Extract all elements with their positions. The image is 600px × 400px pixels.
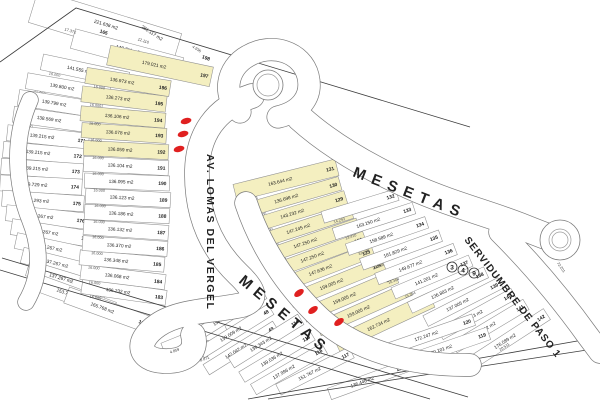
street-label-av-lomas-del-vergel: AV. LOMAS DEL VERGEL <box>204 154 216 310</box>
cadastral-map: 221.638 m2165148.711 m2166141.555 m21671… <box>0 0 600 400</box>
parcel-lot-number: 189 <box>159 197 168 203</box>
parcel-lot-number: 172 <box>73 153 82 160</box>
parcel-lot-number: 188 <box>158 213 167 219</box>
parcel-lot-number: 186 <box>156 246 165 253</box>
parcel-lot-number: 194 <box>154 118 163 125</box>
parcel-dimension: 16.000 <box>92 235 104 240</box>
parcel-lot-number: 174 <box>71 184 80 190</box>
parcel-lot-number: 185 <box>153 262 162 269</box>
parcel-lot-number: 192 <box>157 149 166 155</box>
parcel-dimension: 16.000 <box>92 156 104 161</box>
parcel-dimension: 16.000 <box>93 220 105 225</box>
station-digit: 9 <box>472 270 476 277</box>
parcel-dimension: 16.000 <box>90 138 102 143</box>
parcel-lot-number: 191 <box>157 165 166 171</box>
parcel-lot-number: 183 <box>154 294 163 301</box>
parcel-dimension: 16.000 <box>91 251 103 256</box>
parcel-lot-number: 198 <box>201 54 211 63</box>
parcel-dimension: 16.000 <box>92 172 104 177</box>
parcel-lot-198: 198 <box>201 54 211 63</box>
red-marker <box>180 117 192 126</box>
parcel-lot-number: 195 <box>155 101 164 108</box>
parcel-lot-number: 175 <box>72 201 81 208</box>
parcel-lot-number: 190 <box>158 181 167 187</box>
parcel-area: 136.095 m2 <box>109 179 134 185</box>
parcel-lot-number: 173 <box>71 169 80 176</box>
red-marker <box>173 145 185 154</box>
parcel-dimension: 16.000 <box>93 188 105 192</box>
parcel-dimension: 16.000 <box>94 204 106 209</box>
parcel-lot-number: 187 <box>157 230 166 237</box>
parcel-lot-number: 193 <box>155 133 164 140</box>
cul-de-sac-island-north <box>253 70 283 100</box>
parcel-lot-number: 184 <box>154 279 163 286</box>
edge-dimension: 72.201 <box>556 261 567 274</box>
cul-de-sac-island-east <box>540 220 580 260</box>
station-digit: 4 <box>461 267 465 274</box>
station-digit: 3 <box>450 264 454 271</box>
red-marker <box>177 130 189 139</box>
